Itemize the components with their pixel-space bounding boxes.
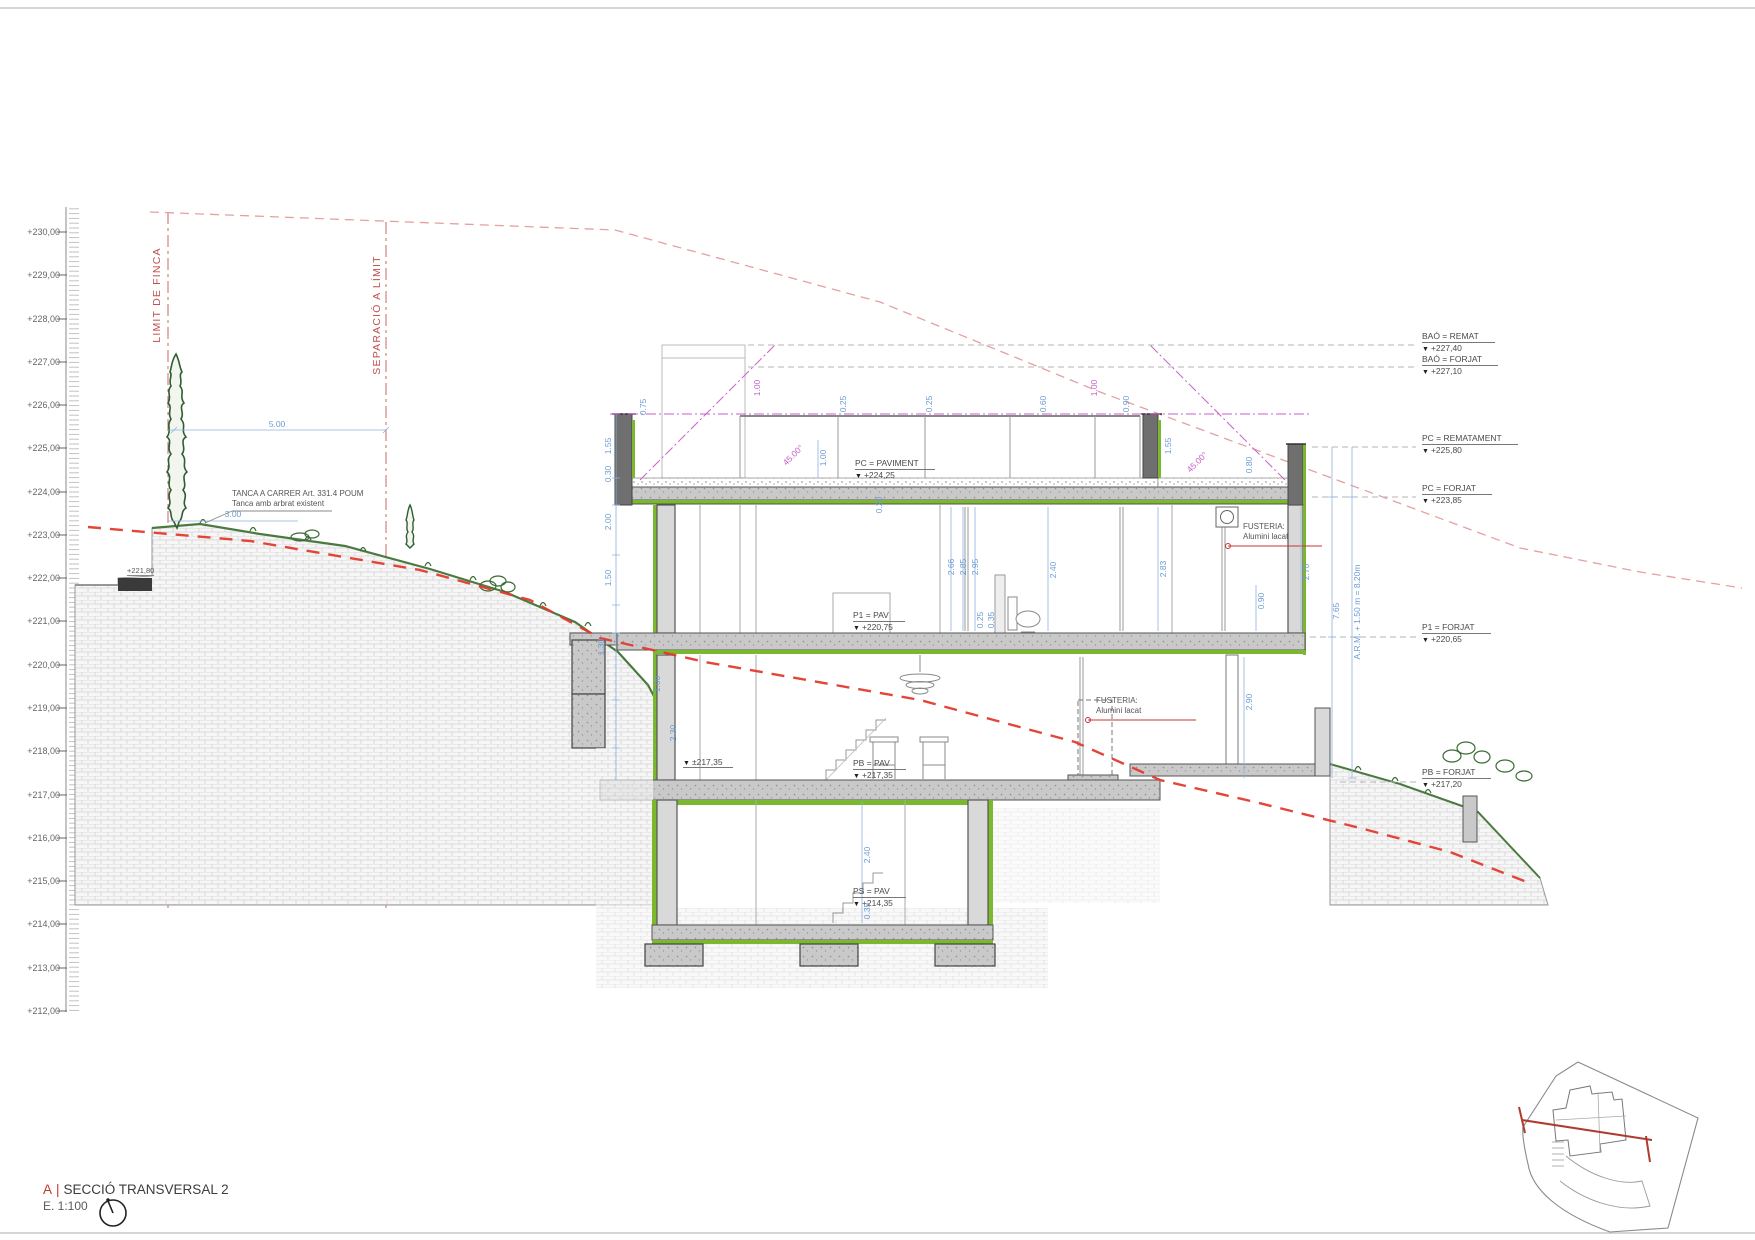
boundary-label-limit-finca: LIMIT DE FINCA: [151, 247, 163, 342]
level-marker-bao-forjat: BAÓ = FORJAT ▼+227,10: [1422, 354, 1498, 378]
dim-label: 0.35: [986, 612, 996, 629]
dim-label: 0.25: [924, 396, 934, 413]
drawing-scale: E. 1:100: [43, 1199, 229, 1213]
dim-label: 1.55: [603, 438, 613, 455]
dim-label: 0.35: [862, 903, 872, 920]
toilet-fixture: [1008, 597, 1040, 632]
fusteria-leader-lower: [1086, 718, 1197, 723]
fusteria-leader-upper: [1226, 544, 1323, 549]
scale-label: +227,00: [8, 357, 60, 367]
fusteria-note-upper: FUSTERIA: Alumini lacat: [1243, 522, 1288, 542]
dim-label: 3.00: [225, 509, 242, 519]
terrain-left: [75, 520, 656, 906]
level-triangle-icon: ▼: [853, 901, 860, 908]
scale-label: +220,00: [8, 660, 60, 670]
scale-label: +222,00: [8, 573, 60, 583]
scale-label: +228,00: [8, 314, 60, 324]
ground-floor: [657, 655, 1330, 800]
dim-label: 5.00: [269, 419, 286, 429]
level-triangle-icon: ▼: [1422, 782, 1429, 789]
dim-label: 0.75: [638, 399, 648, 416]
scale-label: +217,00: [8, 790, 60, 800]
scale-label: +219,00: [8, 703, 60, 713]
level-triangle-icon: ▼: [855, 473, 862, 480]
dim-label: 2.40: [1048, 562, 1058, 579]
cypress-tree-large: [167, 354, 187, 528]
dim-label: 1.30: [596, 639, 606, 656]
fusteria-upper-line1: FUSTERIA:: [1243, 522, 1285, 531]
scale-label: +230,00: [8, 227, 60, 237]
level-triangle-icon: ▼: [1422, 637, 1429, 644]
scale-label: +213,00: [8, 963, 60, 973]
dim-label: 2.40: [862, 847, 872, 864]
dim-label: 7.65: [1331, 603, 1341, 620]
level-marker-pb-forjat: PB = FORJAT ▼+217,20: [1422, 767, 1491, 791]
fusteria-lower-line1: FUSTERIA:: [1096, 696, 1138, 705]
p1-slab: [570, 633, 1305, 700]
level-marker-bao-remat: BAÓ = REMAT ▼+227,40: [1422, 331, 1495, 355]
title-block: A|SECCIÓ TRANSVERSAL 2 E. 1:100: [43, 1182, 229, 1213]
dim-label: 2.30: [668, 725, 678, 742]
level-triangle-icon: ▼: [683, 760, 690, 767]
dim-label: 0.20: [874, 497, 884, 514]
dim-label: 2.83: [1158, 561, 1168, 578]
level-marker-p1-forjat: P1 = FORJAT ▼+220,65: [1422, 622, 1491, 646]
scale-label: +223,00: [8, 530, 60, 540]
roof-bulkhead: [662, 345, 745, 478]
dim-label: 0.80: [1244, 457, 1254, 474]
dim-label: 2.70: [1301, 564, 1311, 581]
dim-label: 1.00: [652, 676, 662, 693]
scale-label: +215,00: [8, 876, 60, 886]
dim-label: 1.00: [818, 450, 828, 467]
cypress-tree-small: [406, 505, 414, 548]
dim-label: 1.55: [1163, 438, 1173, 455]
dim-label: 2.66: [946, 559, 956, 576]
scale-label: +221,00: [8, 616, 60, 626]
retaining-blocks: [572, 640, 605, 748]
level-triangle-icon: ▼: [853, 773, 860, 780]
dim-label: 0.30: [603, 466, 613, 483]
fusteria-lower-line2: Alumini lacat: [1096, 706, 1141, 715]
dim-label: 1.00: [1089, 380, 1099, 397]
roller-blind-box: [1216, 507, 1238, 527]
level-marker-pc-forjat: PC = FORJAT ▼+223,85: [1422, 483, 1492, 507]
fence-note-line1: TANCA A CARRER Art. 331.4 POUM: [232, 489, 363, 498]
pendant-lamp: [900, 655, 940, 694]
fusteria-upper-line2: Alumini lacat: [1243, 532, 1288, 541]
level-marker-p1-pav: P1 = PAV ▼+220,75: [853, 610, 905, 634]
scale-label: +218,00: [8, 746, 60, 756]
dim-label: 2.95: [970, 559, 980, 576]
dim-label: 0.90: [1121, 396, 1131, 413]
level-triangle-icon: ▼: [853, 625, 860, 632]
footings: [645, 944, 995, 966]
fence-note-line2: Tanca amb arbrat existent: [232, 499, 324, 508]
level-triangle-icon: ▼: [1422, 498, 1429, 505]
drawing-title: A|SECCIÓ TRANSVERSAL 2: [43, 1182, 229, 1197]
level-marker-ps-pav: PS = PAV ▼+214,35: [853, 886, 906, 910]
dim-label: 0.25: [838, 396, 848, 413]
scale-label: +212,00: [8, 1006, 60, 1016]
dim-label: 2.90: [1244, 694, 1254, 711]
garden-wall: [1315, 708, 1330, 776]
level-triangle-icon: ▼: [1422, 369, 1429, 376]
level-marker-pb-pav: PB = PAV ▼+217,35: [853, 758, 906, 782]
dim-label: 2.85: [958, 559, 968, 576]
dim-label: 0.25: [975, 612, 985, 629]
level-marker-exterior-grade: ▼±217,35: [683, 757, 733, 768]
dim-label: 0.60: [1038, 396, 1048, 413]
roof-slab: [617, 478, 1305, 504]
dim-label: 2.00: [603, 514, 613, 531]
scale-label: +214,00: [8, 919, 60, 929]
level-marker-pc-rematament: PC = REMATAMENT ▼+225,80: [1422, 433, 1518, 457]
level-triangle-icon: ▼: [1422, 448, 1429, 455]
scale-label: +229,00: [8, 270, 60, 280]
dim-label: 0.90: [1256, 593, 1266, 610]
fence-note: TANCA A CARRER Art. 331.4 POUM Tanca amb…: [232, 489, 363, 509]
title-separator: |: [56, 1182, 60, 1197]
dim-label: 1.50: [603, 570, 613, 587]
dim-label: 1.00: [752, 380, 762, 397]
level-triangle-icon: ▼: [1422, 346, 1429, 353]
street-level-label: +221,80: [127, 566, 154, 576]
building-section: [570, 345, 1330, 988]
scale-label: +224,00: [8, 487, 60, 497]
dim-label: A.R.M. + 1.50 m = 8.20m: [1352, 565, 1362, 660]
scale-label: +226,00: [8, 400, 60, 410]
site-plan-inset: [1519, 1062, 1698, 1232]
drawing-sheet: +230,00+229,00+228,00+227,00+226,00+225,…: [0, 0, 1755, 1240]
garden-ledge: [1130, 764, 1330, 776]
section-letter: A: [43, 1182, 52, 1197]
scale-label: +225,00: [8, 443, 60, 453]
boundary-label-separacio: SEPARACIÓ A LÍMIT: [371, 255, 383, 374]
pb-slab: [600, 780, 1160, 805]
fusteria-note-lower: FUSTERIA: Alumini lacat: [1096, 696, 1141, 716]
title-text: SECCIÓ TRANSVERSAL 2: [64, 1182, 229, 1197]
level-marker-pc-paviment: PC = PAVIMENT ▼+224,25: [855, 458, 935, 482]
scale-label: +216,00: [8, 833, 60, 843]
envelope-line: [150, 212, 1742, 588]
